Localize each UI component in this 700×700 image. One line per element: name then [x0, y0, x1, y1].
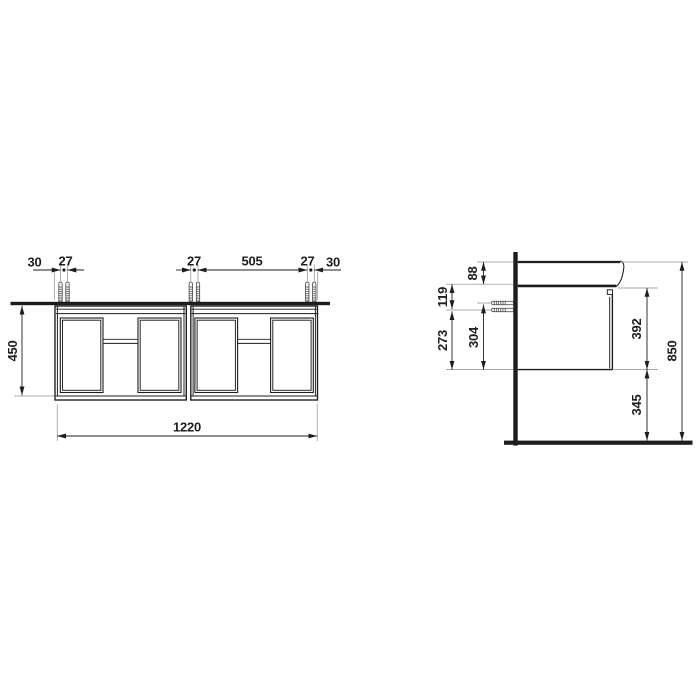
hanger-bolt-icon — [59, 282, 62, 302]
dim-label-27-right: 27 — [300, 254, 314, 269]
floor-line — [504, 441, 693, 445]
dim-label-88: 88 — [465, 266, 480, 280]
hanger-bolt-icon — [196, 282, 199, 302]
countertop-edge — [11, 302, 331, 305]
dim-label-850: 850 — [665, 340, 680, 361]
shelf-rail — [103, 339, 138, 343]
washbasin-profile — [518, 261, 624, 286]
door-panel-right — [271, 318, 314, 393]
wall-section — [513, 252, 517, 446]
dim-label-505: 505 — [241, 254, 262, 269]
hanger-bolt-icon — [491, 301, 513, 304]
dim-label-30-right: 30 — [326, 255, 340, 270]
hanger-bolt-icon — [313, 282, 316, 302]
hanger-bolt-icon — [491, 308, 513, 311]
dimension-height-450: 450 — [5, 306, 54, 396]
vanity-technical-drawing: 30 27 27 505 27 30 450 1220 — [0, 0, 700, 700]
dim-label-304: 304 — [466, 326, 481, 348]
dimension-stack-left: 88 119 304 273 — [435, 262, 483, 370]
cabinet-module-right — [191, 306, 318, 400]
dim-label-30-left: 30 — [27, 255, 41, 270]
extension-lines — [446, 262, 688, 370]
hanger-bolt-icons-side — [491, 301, 513, 311]
dimension-stack-right: 392 345 850 — [629, 262, 682, 441]
hanger-bolt-icon — [306, 282, 309, 302]
door-panel-left — [195, 318, 238, 393]
dimension-width-1220: 1220 — [57, 404, 317, 441]
door-panel-right — [138, 318, 181, 393]
dimension-chain-top: 30 27 27 505 27 30 — [27, 254, 341, 301]
dim-label-119: 119 — [435, 287, 450, 307]
dim-label-273: 273 — [435, 330, 450, 351]
front-view: 30 27 27 505 27 30 450 1220 — [5, 254, 341, 442]
dim-label-27-mid: 27 — [187, 254, 201, 269]
dim-label-450: 450 — [5, 340, 20, 361]
hanger-bolt-icon — [66, 282, 69, 302]
dim-label-27-left: 27 — [58, 254, 72, 269]
dim-label-392: 392 — [629, 318, 644, 339]
door-panel-left — [60, 318, 103, 393]
hanger-bolt-icon — [189, 282, 192, 302]
hanger-bolt-icons-front — [59, 282, 316, 302]
technical-drawing-page: 30 27 27 505 27 30 450 1220 — [0, 0, 700, 700]
dim-label-1220: 1220 — [173, 420, 201, 435]
cabinet-module-left — [55, 306, 186, 400]
dim-label-345: 345 — [629, 394, 644, 415]
side-view: 88 119 304 273 392 345 850 — [435, 252, 692, 446]
cabinet-side-profile — [518, 290, 613, 370]
shelf-rail — [238, 339, 271, 343]
drawer-front-lip — [607, 290, 612, 295]
